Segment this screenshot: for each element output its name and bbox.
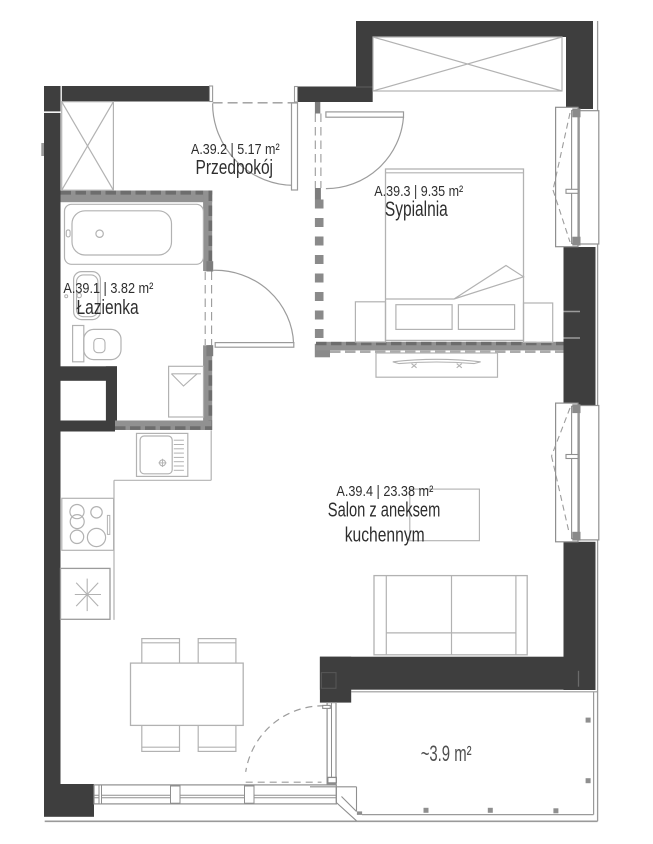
- svg-text:A.39.4 | 23.38 m²: A.39.4 | 23.38 m²: [336, 483, 433, 500]
- svg-text:Salon z aneksem: Salon z aneksem: [328, 500, 441, 522]
- svg-text:Przedpokój: Przedpokój: [196, 156, 274, 179]
- svg-text:~3.9 m²: ~3.9 m²: [421, 741, 472, 766]
- svg-text:A.39.1 | 3.82 m²: A.39.1 | 3.82 m²: [63, 280, 153, 297]
- svg-text:Łazienka: Łazienka: [77, 296, 140, 319]
- svg-text:Sypialnia: Sypialnia: [385, 198, 448, 221]
- svg-text:kuchennym: kuchennym: [345, 525, 425, 547]
